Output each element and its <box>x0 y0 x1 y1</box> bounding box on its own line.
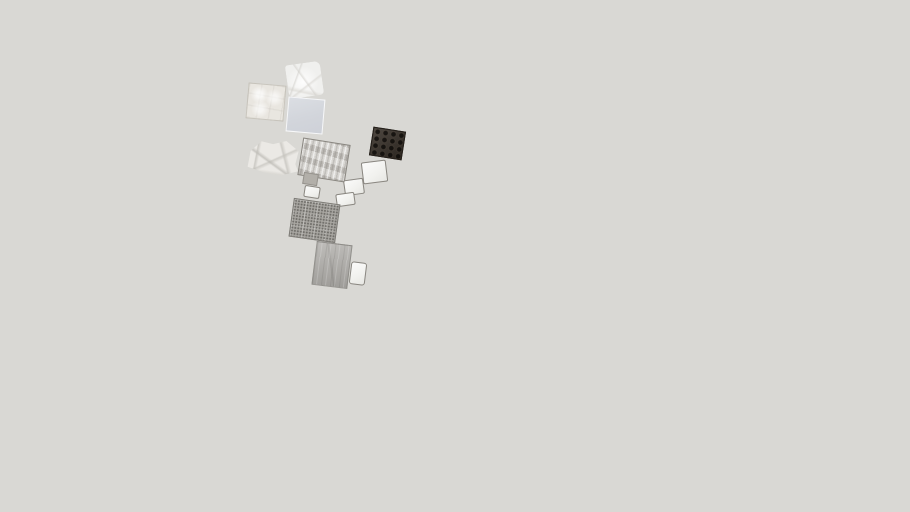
cream-quilted-panel-swatch[interactable] <box>246 82 287 121</box>
dark-tufted-leather-swatch[interactable] <box>369 127 406 161</box>
crumpled-paper-swatch[interactable] <box>246 137 300 178</box>
crumpled-white-sheet-swatch[interactable] <box>285 61 324 100</box>
small-gray-swatch[interactable] <box>302 172 319 186</box>
white-panel-swatch[interactable] <box>361 160 388 185</box>
pale-blue-panel-swatch[interactable] <box>286 96 326 134</box>
small-white-swatch[interactable] <box>303 185 321 199</box>
perforated-panel-swatch[interactable] <box>289 198 341 243</box>
viewport-canvas[interactable] <box>0 0 910 512</box>
white-card-swatch[interactable] <box>349 261 368 286</box>
wood-plank-swatch[interactable] <box>311 241 352 289</box>
